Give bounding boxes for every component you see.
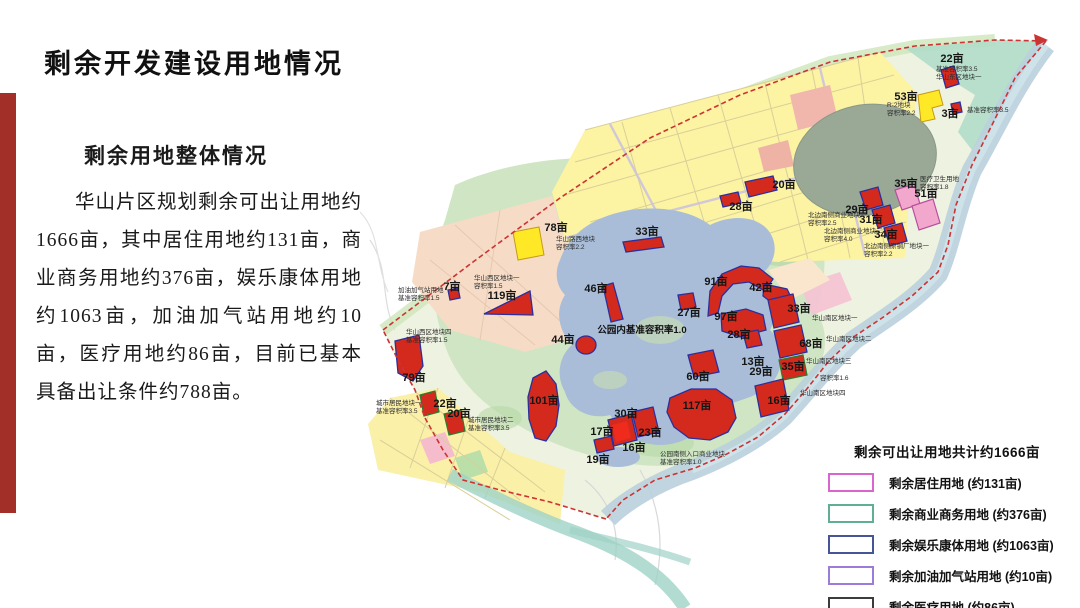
area-label: 34亩 [874, 227, 897, 241]
page-title: 剩余开发建设用地情况 [44, 42, 404, 81]
area-label: 33亩 [787, 301, 810, 315]
parcel-note: 华山南区地块一 [812, 313, 858, 322]
area-label: 3亩 [941, 106, 958, 120]
area-label: 22亩 [940, 51, 963, 65]
legend: 剩余可出让用地共计约1666亩 剩余居住用地 (约131亩) 剩余商业商务用地 … [828, 441, 1080, 608]
area-label: 33亩 [635, 224, 658, 238]
legend-title: 剩余可出让用地共计约1666亩 [854, 441, 1080, 461]
park-far-note: 公园内基准容积率1.0 [597, 324, 686, 336]
area-label: 17亩 [590, 424, 613, 438]
parcel-note: 华山南区地块二 [826, 334, 872, 343]
parcel-note: 华山西区地块四基准容积率1.5 [406, 327, 452, 344]
slide: 剩余开发建设用地情况 剩余用地整体情况 华山片区规划剩余可出让用地约1666亩，… [0, 0, 1080, 608]
area-label: 91亩 [704, 274, 727, 288]
accent-bar [0, 93, 16, 513]
area-label: 68亩 [799, 336, 822, 350]
left-panel: 剩余用地整体情况 华山片区规划剩余可出让用地约1666亩，其中居住用地约131亩… [36, 140, 362, 412]
legend-label: 剩余医疗用地 (约86亩) [889, 597, 1015, 608]
legend-label: 剩余加油加气站用地 (约10亩) [889, 566, 1052, 585]
area-label: 16亩 [622, 440, 645, 454]
area-label: 51亩 [914, 186, 937, 200]
area-label: 31亩 [859, 212, 882, 226]
area-label: 30亩 [614, 406, 637, 420]
area-label: 28亩 [727, 327, 750, 341]
legend-label: 剩余娱乐康体用地 (约1063亩) [889, 535, 1054, 554]
parcel-note: 华山南区地块三 [806, 356, 852, 365]
area-label: 42亩 [749, 280, 772, 294]
legend-swatch-commercial [828, 504, 874, 523]
area-label: 7亩 [443, 279, 460, 293]
parcel-note: 容积率1.6 [820, 373, 849, 382]
area-label: 35亩 [781, 359, 804, 373]
legend-item-commercial: 剩余商业商务用地 (约376亩) [828, 504, 1080, 523]
area-label: 20亩 [447, 406, 470, 420]
area-label: 28亩 [729, 199, 752, 213]
area-label: 101亩 [529, 393, 558, 407]
area-label: 46亩 [584, 281, 607, 295]
area-label: 117亩 [683, 398, 712, 412]
legend-swatch-residential [828, 473, 874, 492]
area-label: 27亩 [677, 305, 700, 319]
area-label: 60亩 [686, 369, 709, 383]
legend-item-recreation: 剩余娱乐康体用地 (约1063亩) [828, 535, 1080, 554]
area-label: 78亩 [544, 220, 567, 234]
legend-swatch-recreation [828, 535, 874, 554]
parcel-note: 华山南区地块四 [800, 388, 846, 397]
lake-island [593, 371, 627, 389]
area-label: 53亩 [894, 89, 917, 103]
legend-item-gas-station: 剩余加油加气站用地 (约10亩) [828, 566, 1080, 585]
area-label: 20亩 [772, 177, 795, 191]
contour-line [360, 212, 388, 292]
area-label: 16亩 [767, 393, 790, 407]
summary-paragraph: 华山片区规划剩余可出让用地约1666亩，其中居住用地约131亩，商业商务用地约3… [36, 184, 362, 412]
area-label: 23亩 [638, 425, 661, 439]
legend-swatch-gas-station [828, 566, 874, 585]
legend-label: 剩余居住用地 (约131亩) [889, 473, 1022, 492]
area-label: 79亩 [402, 370, 425, 384]
area-label: 97亩 [714, 309, 737, 323]
area-label: 119亩 [488, 288, 517, 302]
legend-item-residential: 剩余居住用地 (约131亩) [828, 473, 1080, 492]
parcel-note: 城市居民地块二基准容积率3.5 [468, 415, 514, 432]
parcel-note: 基准容积率3.5 [967, 105, 1009, 114]
legend-label: 剩余商业商务用地 (约376亩) [889, 504, 1047, 523]
legend-swatch-medical [828, 597, 874, 608]
parcel-note: 加油加气站用地基准容积率1.5 [398, 285, 444, 302]
area-label: 29亩 [749, 364, 772, 378]
parcel-note: 基准容积率3.5华山东区地块一 [936, 64, 982, 81]
area-label: 44亩 [551, 332, 574, 346]
legend-item-medical: 剩余医疗用地 (约86亩) [828, 597, 1080, 608]
area-label: 19亩 [586, 452, 609, 466]
parcel-note: 城市居民地块一基准容积率3.5 [376, 398, 422, 415]
section-subtitle: 剩余用地整体情况 [84, 140, 362, 170]
